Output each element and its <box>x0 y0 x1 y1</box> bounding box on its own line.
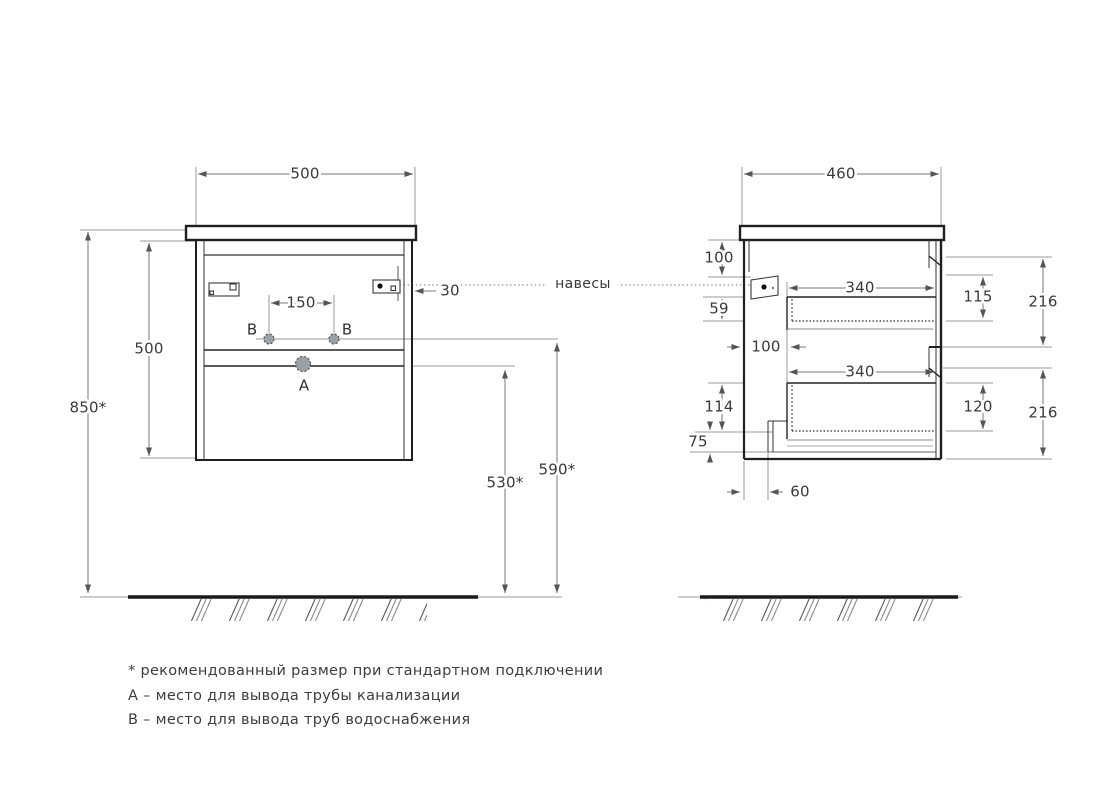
dimension-labels: 500 500 850* 150 30 590* 530* B B A наве… <box>70 165 1058 501</box>
floor-right <box>678 597 962 621</box>
label-hole-b-left: B <box>247 321 257 339</box>
dim-front-panel-bottom: 216 <box>1028 404 1057 422</box>
hanger-right-icon <box>373 280 400 293</box>
vanity-dimension-drawing: 500 500 850* 150 30 590* 530* B B A наве… <box>0 0 1100 792</box>
label-hole-b-right: B <box>342 321 352 339</box>
hanger-left-icon <box>209 283 239 296</box>
dim-back-to-drawer: 100 <box>751 338 780 356</box>
footnotes: * рекомендованный размер при стандартном… <box>128 663 603 728</box>
side-countertop <box>740 226 944 240</box>
note-drain-outlet: А – место для вывода трубы канализации <box>128 688 460 704</box>
handle-groove-top <box>929 256 940 265</box>
dim-recess-height: 75 <box>688 433 708 451</box>
dim-top-to-hanger: 100 <box>704 249 733 267</box>
front-countertop <box>186 226 416 240</box>
dim-cabinet-height: 500 <box>134 340 163 358</box>
dim-side-depth: 460 <box>826 165 855 183</box>
drain-hole-a <box>296 357 311 372</box>
technical-drawing-page: 500 500 850* 150 30 590* 530* B B A наве… <box>0 0 1100 792</box>
dim-floor-to-divider: 530* <box>487 474 524 492</box>
floor-left <box>80 597 562 621</box>
dim-front-panel-top: 216 <box>1028 293 1057 311</box>
drawer-box-bottom <box>787 383 936 446</box>
water-hole-b-right <box>329 334 339 344</box>
front-view-geometry <box>186 226 416 460</box>
floor-hatch-right <box>705 599 950 621</box>
floor-hatch-left <box>177 599 427 621</box>
dim-holes-spacing: 150 <box>286 294 315 312</box>
note-recommended-size: * рекомендованный размер при стандартном… <box>128 663 603 679</box>
note-water-outlet: В – место для вывода труб водоснабжения <box>128 712 470 728</box>
water-hole-b-left <box>264 334 274 344</box>
dim-floor-to-top: 850* <box>70 399 107 417</box>
dim-drawer-inner-bottom: 120 <box>963 398 992 416</box>
dim-hanger-offset: 30 <box>440 282 460 300</box>
dim-floor-to-b: 590* <box>539 461 576 479</box>
dim-front-width: 500 <box>290 165 319 183</box>
dim-lower-clearance: 114 <box>704 398 733 416</box>
label-hangers: навесы <box>555 276 611 292</box>
dim-drawer-depth-top: 340 <box>845 279 874 297</box>
dim-drawer-depth-bottom: 340 <box>845 363 874 381</box>
label-hole-a: A <box>299 377 310 395</box>
dim-hanger-to-drawer: 59 <box>709 300 729 318</box>
extension-lines <box>80 167 1052 500</box>
dim-drawer-inner-top: 115 <box>963 288 992 306</box>
dim-recess-width: 60 <box>790 483 810 501</box>
hanger-side-icon <box>751 276 778 299</box>
drawer-box-top <box>787 297 936 330</box>
